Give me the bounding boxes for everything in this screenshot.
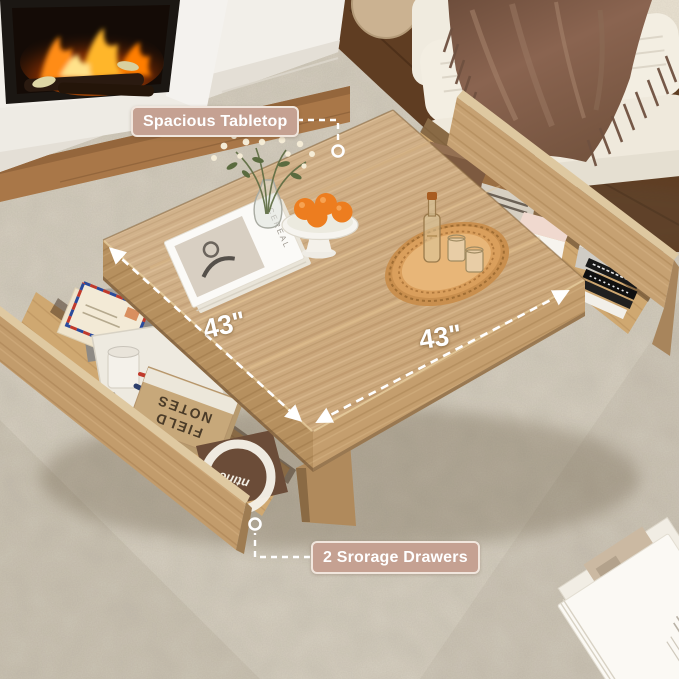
callout-spacious-tabletop-text: Spacious Tabletop — [143, 113, 287, 131]
callout-storage-drawers: 2 Srorage Drawers — [311, 541, 480, 574]
fire-flames — [20, 28, 164, 97]
dimension-label-right: 43" — [417, 319, 464, 356]
callout-storage-drawers-text: 2 Srorage Drawers — [323, 549, 468, 567]
product-photo-coffee-table: me — [0, 0, 679, 679]
scene-illustration: me — [0, 0, 679, 679]
callout-spacious-tabletop: Spacious Tabletop — [131, 106, 299, 137]
